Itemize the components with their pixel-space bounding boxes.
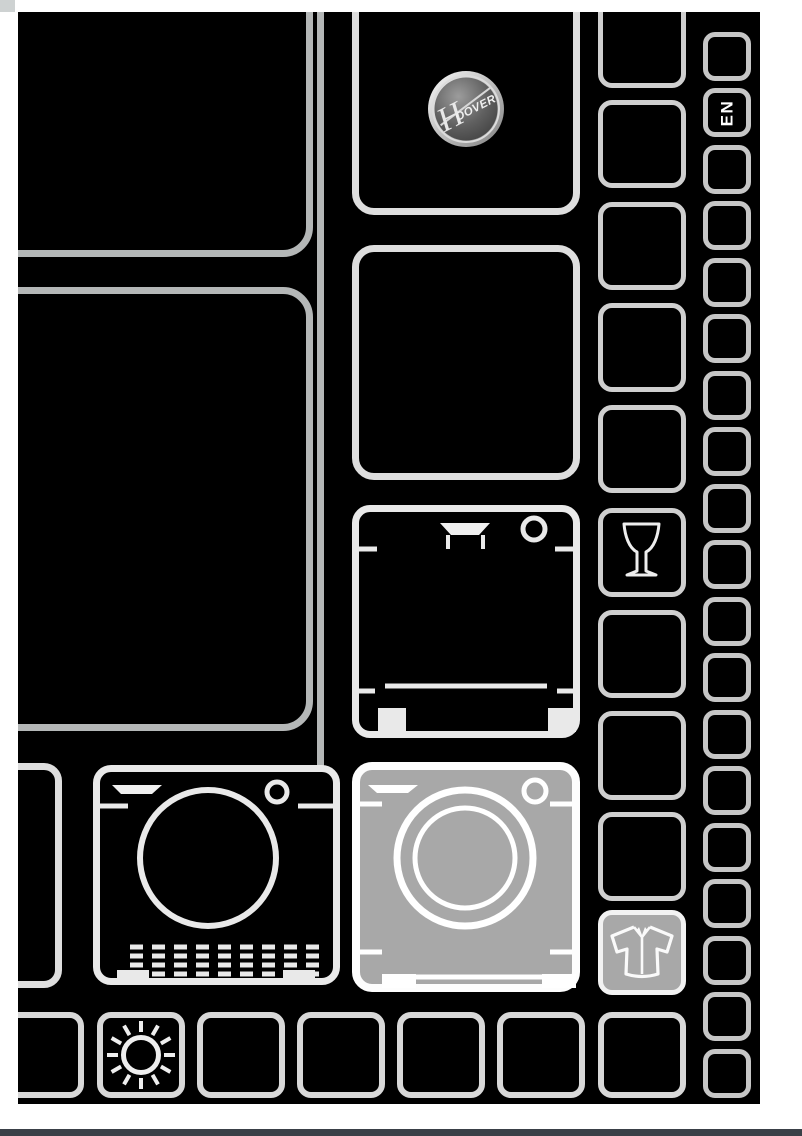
tile-washing-machine — [352, 762, 580, 992]
tile-glassware — [598, 508, 686, 597]
small-square-tile — [703, 710, 751, 759]
square-tile — [598, 711, 686, 800]
tumble-dryer-icon — [93, 765, 340, 985]
small-square-tile — [703, 32, 751, 81]
small-square-tile — [703, 936, 751, 985]
small-square-tile — [703, 992, 751, 1041]
small-square-tile — [703, 258, 751, 307]
tile-dishwasher — [352, 505, 580, 738]
scan-corner-artifact — [0, 0, 15, 12]
small-square-tile — [703, 484, 751, 533]
square-tile — [598, 405, 686, 493]
square-tile — [598, 303, 686, 392]
tile-blank-middle — [352, 245, 580, 480]
tile-garment — [598, 910, 686, 995]
small-square-tile — [703, 427, 751, 476]
bottom-row-tile — [297, 1012, 385, 1098]
tile-sun — [97, 1012, 185, 1098]
hoover-logo: H OOVER — [352, 12, 580, 215]
small-square-tile — [703, 766, 751, 815]
dishwasher-icon — [352, 505, 580, 738]
small-square-tile — [703, 823, 751, 872]
bottom-row-tile — [497, 1012, 585, 1098]
small-square-tile — [703, 145, 751, 194]
tile-tumble-dryer — [93, 765, 340, 985]
manual-cover-page: H OOVER — [0, 0, 802, 1136]
square-tile — [598, 12, 686, 88]
small-square-tile — [703, 314, 751, 363]
square-tile — [598, 1012, 686, 1098]
cover-black-area: H OOVER — [18, 12, 760, 1104]
square-tile — [598, 812, 686, 901]
small-square-tile — [703, 540, 751, 589]
sun-icon — [97, 1012, 185, 1098]
panel-top-left — [18, 12, 313, 257]
shirt-icon — [598, 910, 686, 995]
washing-machine-icon — [352, 762, 580, 992]
square-tile — [598, 610, 686, 698]
tile-partial-left — [18, 763, 62, 988]
wine-glass-icon — [598, 508, 686, 597]
small-square-tile — [703, 879, 751, 928]
bottom-row-tile-partial — [18, 1012, 84, 1098]
tile-language-en: EN — [703, 88, 751, 137]
panel-mid-left — [18, 287, 313, 731]
language-tab-en: EN — [717, 99, 737, 126]
vertical-divider-line — [317, 12, 324, 769]
small-square-tile — [703, 201, 751, 250]
footer-bar — [0, 1129, 802, 1136]
small-square-tile — [703, 1049, 751, 1098]
bottom-row-tile — [197, 1012, 285, 1098]
small-square-tile — [703, 597, 751, 646]
small-square-tile — [703, 653, 751, 702]
bottom-row-tile — [397, 1012, 485, 1098]
tile-brand-logo: H OOVER — [352, 12, 580, 215]
small-square-tile — [703, 371, 751, 420]
square-tile — [598, 100, 686, 188]
square-tile — [598, 202, 686, 290]
